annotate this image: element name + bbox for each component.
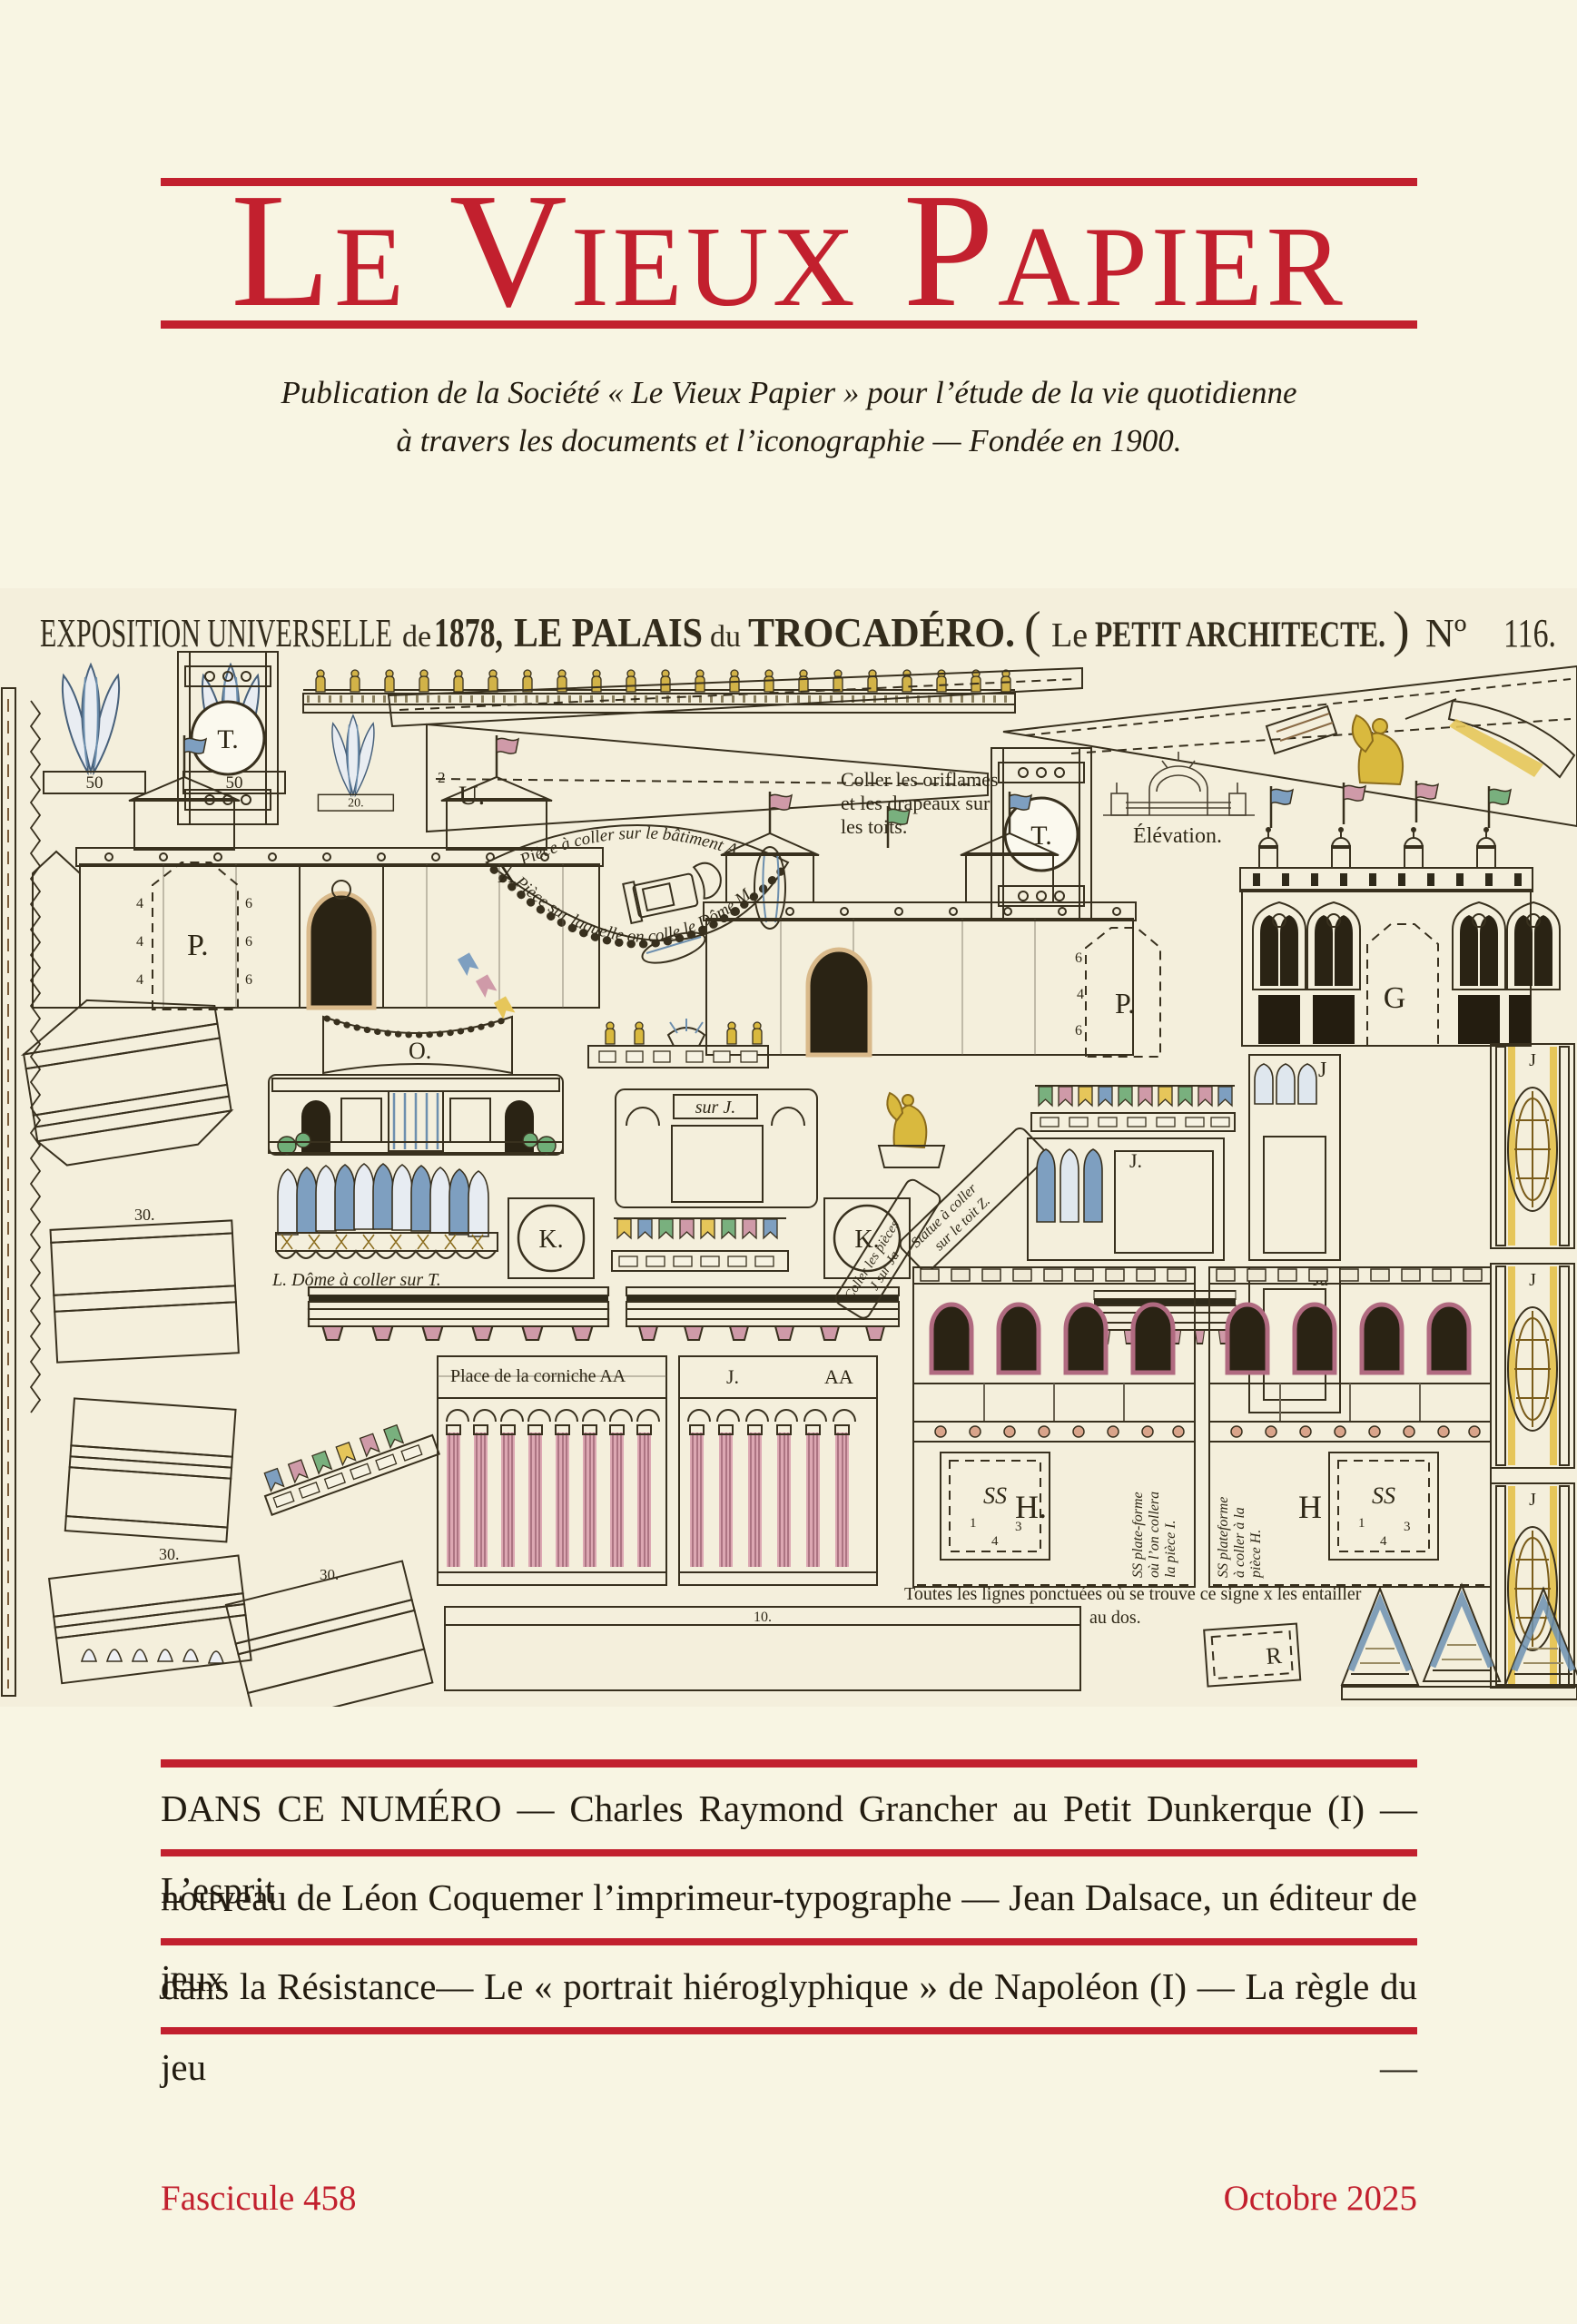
svg-text:6: 6: [1075, 950, 1082, 966]
masthead-subtitle: Publication de la Société « Le Vieux Pap…: [161, 369, 1417, 465]
svg-text:30.: 30.: [134, 1206, 155, 1224]
svg-text:SS plateforme: SS plateforme: [1216, 1497, 1231, 1578]
svg-text:R: R: [1265, 1642, 1283, 1669]
svg-text:pièce H.: pièce H.: [1248, 1530, 1264, 1579]
contents-rule-1: [161, 1759, 1417, 1768]
contents-line-3: dans la Résistance— Le « portrait hiérog…: [161, 1946, 1417, 2027]
cutting-note-line-1: Toutes les lignes ponctuées où se trouve…: [904, 1584, 1362, 1604]
svg-text:O.: O.: [409, 1038, 431, 1064]
trocadero-paper-model-plate: T. K. SS 1 3 4: [0, 588, 1577, 1707]
contents-line-2: nouveau de Léon Coquemer l’imprimeur-typ…: [161, 1857, 1417, 1938]
svg-text:à coller à la: à coller à la: [1232, 1507, 1247, 1578]
svg-text:J.: J.: [1129, 1149, 1142, 1172]
svg-text:J.: J.: [726, 1365, 739, 1388]
svg-text:20.: 20.: [348, 796, 364, 811]
svg-text:la pièce I.: la pièce I.: [1163, 1520, 1178, 1578]
issue-date: Octobre 2025: [1224, 2175, 1417, 2222]
svg-text:30.: 30.: [320, 1566, 339, 1583]
contents-rule-2: [161, 1849, 1417, 1856]
contents-rule-3: [161, 1938, 1417, 1945]
svg-text:AA: AA: [824, 1365, 853, 1388]
svg-text:10.: 10.: [754, 1610, 772, 1625]
svg-text:SS plate-forme: SS plate-forme: [1130, 1492, 1146, 1578]
svg-text:U.: U.: [458, 781, 485, 811]
cover-illustration: T. K. SS 1 3 4: [0, 588, 1577, 1707]
svg-text:Coller les oriflames: Coller les oriflames: [841, 768, 999, 791]
magazine-title: Le Vieux Papier: [0, 169, 1577, 332]
svg-text:G: G: [1384, 981, 1406, 1015]
cutting-note-line-2: au dos.: [1089, 1608, 1141, 1628]
cover-footer: Fascicule 458 Octobre 2025: [161, 2175, 1417, 2222]
svg-text:où l’on collera: où l’on collera: [1147, 1492, 1162, 1578]
subtitle-line-1: Publication de la Société « Le Vieux Pap…: [161, 369, 1417, 417]
subtitle-line-2: à travers les documents et l’iconographi…: [161, 417, 1417, 465]
contents-line-1: DANS CE NUMÉRO — Charles Raymond Granche…: [161, 1768, 1417, 1849]
contents-rule-4: [161, 2027, 1417, 2034]
svg-text:Place de la corniche AA: Place de la corniche AA: [450, 1366, 626, 1386]
svg-text:4: 4: [136, 972, 143, 988]
svg-text:6: 6: [1075, 1023, 1082, 1039]
svg-text:J: J: [1318, 1059, 1326, 1082]
svg-text:4: 4: [136, 934, 143, 950]
svg-text:et les drapeaux sur: et les drapeaux sur: [841, 792, 991, 814]
svg-text:P.: P.: [1115, 987, 1135, 1019]
svg-text:4: 4: [136, 896, 143, 911]
svg-text:H: H: [1298, 1489, 1322, 1525]
svg-text:P.: P.: [187, 929, 209, 962]
svg-text:sur J.: sur J.: [695, 1098, 735, 1118]
svg-text:4: 4: [1077, 987, 1084, 1002]
fascicule-number: Fascicule 458: [161, 2175, 357, 2222]
svg-text:Élévation.: Élévation.: [1133, 824, 1222, 848]
svg-text:6: 6: [245, 896, 252, 911]
svg-text:50: 50: [86, 773, 103, 793]
masthead-rule-bottom: [161, 320, 1417, 329]
svg-text:30.: 30.: [159, 1545, 180, 1563]
magazine-cover: Le Vieux Papier Publication de la Sociét…: [0, 0, 1577, 2324]
svg-text:2: 2: [438, 769, 446, 786]
svg-text:6: 6: [245, 934, 252, 950]
svg-text:6: 6: [245, 972, 252, 988]
